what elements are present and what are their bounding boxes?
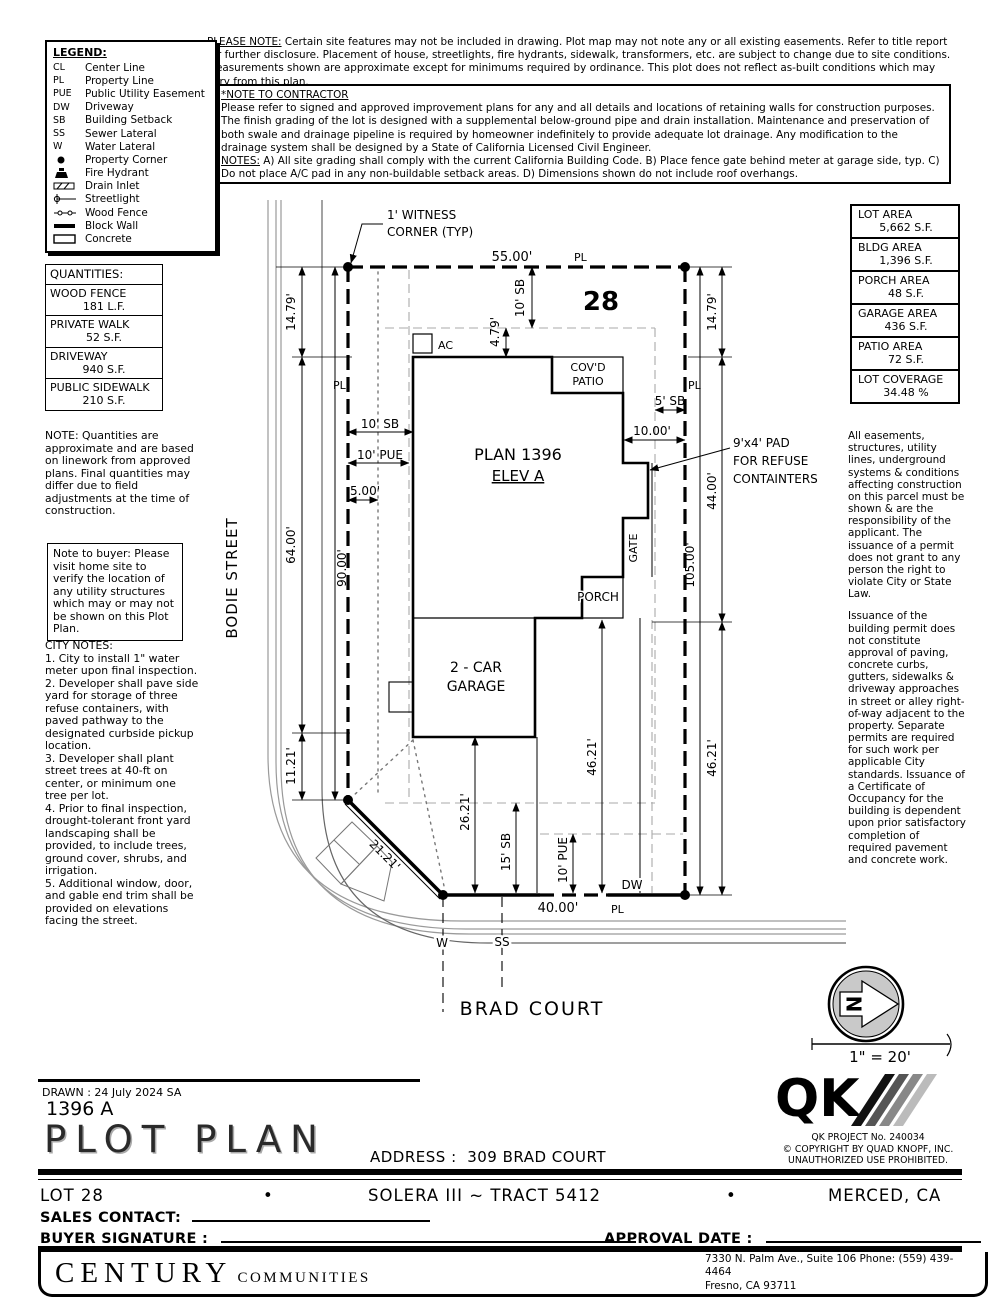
areas-row: LOT COVERAGE34.48 % (850, 369, 960, 404)
area-value: 436 S.F. (858, 320, 954, 333)
witness-corner-label-2: CORNER (TYP) (387, 225, 473, 239)
area-name: PORCH AREA (858, 274, 954, 287)
dim-5sb: 5' SB (655, 394, 686, 408)
sewer-lateral-label: SS (494, 935, 509, 949)
address-label: ADDRESS : (370, 1148, 457, 1166)
quantities-table: QUANTITIES: WOOD FENCE181 L.F. PRIVATE W… (45, 266, 163, 411)
area-name: BLDG AREA (858, 241, 954, 254)
pl-symbol-right: PL (688, 379, 702, 392)
dimension-lines (302, 224, 730, 895)
tract-label: SOLERA III ~ TRACT 5412 (368, 1186, 601, 1205)
dim-15sb: 15' SB (499, 833, 513, 871)
quantity-name: WOOD FENCE (50, 287, 158, 300)
city-note-4: 4. Prior to final inspection, drought-to… (45, 803, 200, 878)
sewer-symbol: SS (53, 128, 85, 139)
streetlight-icon (53, 193, 85, 205)
city-note-1: 1. City to install 1" water meter upon f… (45, 653, 200, 678)
qk-logo-text: QK (775, 1069, 861, 1128)
brand-secondary: COMMUNITIES (237, 1270, 370, 1286)
approval-date-blank (766, 1229, 981, 1243)
city-note-3: 3. Developer shall plant street trees at… (45, 753, 200, 803)
dim-top-55: 55.00' (492, 250, 533, 265)
divider-line-top (38, 1079, 420, 1082)
refuse-pad-label-2: FOR REFUSE (733, 454, 808, 468)
dim-right-4621: 46.21' (705, 739, 719, 777)
dim-2121: 21.21' (367, 837, 404, 874)
quantities-row: WOOD FENCE181 L.F. (45, 284, 163, 317)
sales-contact-blank (192, 1208, 430, 1222)
quantity-name: DRIVEWAY (50, 350, 158, 363)
covd-patio-label-1: COV'D (570, 361, 605, 374)
legend-label: Center Line (85, 62, 145, 74)
plot-plan-sheet: { "notes": { "please_note_label": "PLEAS… (0, 0, 1000, 1302)
dim-left-1479: 14.79' (284, 293, 298, 331)
plan-name-label: PLAN 1396 (474, 445, 562, 464)
dim-right-105: 105.00' (683, 542, 697, 587)
areas-row: LOT AREA5,662 S.F. (850, 204, 960, 239)
footer-box: CENTURY COMMUNITIES 7330 N. Palm Ave., S… (38, 1252, 988, 1297)
buyer-signature-row: BUYER SIGNATURE : (40, 1228, 636, 1247)
property-corner-icon (53, 154, 85, 166)
areas-table: LOT AREA5,662 S.F. BLDG AREA1,396 S.F. P… (850, 206, 960, 404)
city-label: MERCED, CA (828, 1186, 941, 1205)
legend-item-streetlight: Streetlight (53, 193, 209, 206)
legend-item-wood-fence: Wood Fence (53, 206, 209, 219)
city-note-2: 2. Developer shall pave side yard for st… (45, 678, 200, 753)
wood-fence-lines (352, 272, 444, 886)
quantity-name: PUBLIC SIDEWALK (50, 381, 158, 394)
contractor-note-p2: The finish grading of the lot is designe… (221, 115, 943, 155)
contractor-notes-text: A) All site grading shall comply with th… (221, 155, 940, 180)
contractor-note-p1: Please refer to signed and approved impr… (221, 102, 943, 115)
pl-symbol-left: PL (333, 379, 347, 392)
quantities-row: PUBLIC SIDEWALK210 S.F. (45, 378, 163, 411)
dim-479: 4.79' (488, 317, 502, 347)
area-name: LOT COVERAGE (858, 373, 954, 386)
dim-inner-4621: 46.21' (585, 738, 599, 776)
quantity-value: 181 L.F. (50, 300, 158, 313)
legend-label: Property Line (85, 75, 154, 87)
easement-note: All easements, structures, utility lines… (848, 430, 966, 600)
dim-left-90: 90.00' (335, 549, 349, 587)
contractor-note-p3: NOTES: A) All site grading shall comply … (221, 155, 943, 181)
house-outline (389, 334, 652, 893)
setback-easement-lines (385, 270, 683, 893)
driveway-label: DW (621, 878, 642, 892)
legend-label: Drain Inlet (85, 180, 139, 192)
legend-item-fire-hydrant: Fire Hydrant (53, 167, 209, 180)
area-value: 1,396 S.F. (858, 254, 954, 267)
quantity-value: 52 S.F. (50, 331, 158, 344)
area-value: 5,662 S.F. (858, 221, 954, 234)
street-lines (268, 200, 846, 943)
areas-row: GARAGE AREA436 S.F. (850, 303, 960, 338)
dim-500: 5.00' (350, 484, 380, 498)
sheet-title: PLOT PLAN (44, 1118, 327, 1161)
area-value: 72 S.F. (858, 353, 954, 366)
driveway-symbol: DW (53, 102, 85, 113)
address-value: 309 BRAD COURT (467, 1148, 606, 1166)
buyer-note-box: Note to buyer: Please visit home site to… (47, 543, 183, 641)
wood-fence-icon (53, 207, 85, 219)
water-symbol: W (53, 141, 85, 152)
quantities-title: QUANTITIES: (45, 264, 163, 285)
fire-hydrant-icon (53, 167, 85, 179)
city-notes-title: CITY NOTES: (45, 640, 200, 653)
dim-10sb-left: 10' SB (361, 417, 399, 431)
contractor-note-label: *NOTE TO CONTRACTOR (221, 89, 943, 102)
legend-label: Building Setback (85, 114, 172, 126)
pue-symbol: PUE (53, 88, 85, 99)
areas-row: PATIO AREA72 S.F. (850, 336, 960, 371)
copyright-line-1: © COPYRIGHT BY QUAD KNOPF, INC. (773, 1144, 963, 1156)
city-notes: CITY NOTES: 1. City to install 1" water … (45, 640, 200, 928)
qk-logo-graphic: QK (773, 1068, 963, 1128)
ac-pad-label: AC (438, 339, 453, 352)
copyright-line-2: UNAUTHORIZED USE PROHIBITED. (773, 1155, 963, 1167)
dim-10pue-bottom: 10' PUE (556, 837, 570, 883)
water-lateral-label: W (436, 936, 448, 950)
brand-primary: CENTURY (55, 1257, 232, 1289)
right-notes: All easements, structures, utility lines… (848, 430, 966, 866)
property-lines (345, 267, 685, 899)
area-name: GARAGE AREA (858, 307, 954, 320)
legend-item-concrete: Concrete (53, 232, 209, 245)
legend-label: Concrete (85, 233, 132, 245)
drawing-labels: 1' WITNESS CORNER (TYP) 55.00' PL 28 PL … (223, 208, 818, 1020)
approval-date-label: APPROVAL DATE : (604, 1231, 753, 1247)
lot-label: LOT 28 (40, 1186, 104, 1205)
city-note-5: 5. Additional window, door, and gable en… (45, 878, 200, 928)
legend-item-property-line: PLProperty Line (53, 74, 209, 87)
buyer-signature-blank (221, 1229, 636, 1243)
legend-item-pue: PUEPublic Utility Easement (53, 87, 209, 100)
setback-symbol: SB (53, 115, 85, 126)
legend-label: Wood Fence (85, 207, 148, 219)
north-label: N (842, 996, 866, 1013)
dim-2621: 26.21' (458, 793, 472, 831)
pl-symbol-top: PL (574, 251, 588, 264)
north-arrow: N (829, 967, 903, 1041)
dim-10sb-top: 10' SB (513, 279, 527, 317)
qk-logo: QK QK PROJECT No. 240034 © COPYRIGHT BY … (773, 1068, 963, 1167)
garage-label-2: GARAGE (447, 679, 506, 695)
sales-contact-row: SALES CONTACT: (40, 1207, 430, 1226)
porch-label: PORCH (577, 590, 619, 604)
area-value: 48 S.F. (858, 287, 954, 300)
contractor-notes-label: NOTES: (221, 155, 260, 167)
legend-label: Public Utility Easement (85, 88, 205, 100)
bodie-street-label: BODIE STREET (223, 517, 241, 638)
drain-inlet-icon (53, 180, 85, 192)
legend-label: Fire Hydrant (85, 167, 149, 179)
please-note-label: PLEASE NOTE: (207, 36, 282, 48)
permit-note: Issuance of the building permit does not… (848, 610, 966, 866)
property-line-symbol: PL (53, 75, 85, 86)
legend-title: LEGEND: (53, 46, 209, 59)
centerline-symbol: CL (53, 62, 85, 73)
bullet-2: • (726, 1186, 737, 1205)
legend-label: Streetlight (85, 193, 140, 205)
legend-item-driveway: DWDriveway (53, 101, 209, 114)
dim-10pue-left: 10' PUE (357, 448, 403, 462)
legend-label: Block Wall (85, 220, 138, 232)
dim-left-1121: 11.21' (284, 747, 298, 785)
dim-4000: 40.00' (538, 901, 579, 916)
footer-address-line-2: Fresno, CA 93711 (705, 1280, 973, 1294)
legend-item-sewer: SSSewer Lateral (53, 127, 209, 140)
dim-right-44: 44.00' (705, 472, 719, 510)
qk-project-number: QK PROJECT No. 240034 (773, 1132, 963, 1144)
contractor-note-box: *NOTE TO CONTRACTOR Please refer to sign… (213, 84, 951, 184)
dim-right-1479: 14.79' (705, 293, 719, 331)
legend-label: Water Lateral (85, 141, 155, 153)
quantity-value: 210 S.F. (50, 394, 158, 407)
area-name: PATIO AREA (858, 340, 954, 353)
legend-item-block-wall: Block Wall (53, 219, 209, 232)
divider-line-1 (38, 1179, 962, 1180)
please-note: PLEASE NOTE: Certain site features may n… (207, 36, 952, 89)
divider-bar-1 (38, 1169, 962, 1175)
areas-row: BLDG AREA1,396 S.F. (850, 237, 960, 272)
block-wall-icon (53, 220, 85, 232)
brad-court-label: BRAD COURT (460, 998, 605, 1020)
buyer-signature-label: BUYER SIGNATURE : (40, 1231, 208, 1247)
quantity-name: PRIVATE WALK (50, 318, 158, 331)
legend-item-property-corner: Property Corner (53, 153, 209, 166)
refuse-pad-label-1: 9'x4' PAD (733, 436, 790, 450)
legend-label: Property Corner (85, 154, 167, 166)
legend-item-water: WWater Lateral (53, 140, 209, 153)
quantities-row: PRIVATE WALK52 S.F. (45, 315, 163, 348)
legend-label: Driveway (85, 101, 134, 113)
areas-row: PORCH AREA48 S.F. (850, 270, 960, 305)
please-note-text: Certain site features may not be include… (207, 36, 950, 88)
footer-address-line-1: 7330 N. Palm Ave., Suite 106 Phone: (559… (705, 1253, 973, 1280)
elev-label: ELEV A (492, 467, 545, 485)
address-line: ADDRESS : 309 BRAD COURT (370, 1148, 606, 1166)
legend-item-drain-inlet: Drain Inlet (53, 180, 209, 193)
sales-contact-label: SALES CONTACT: (40, 1210, 181, 1226)
quantity-value: 940 S.F. (50, 363, 158, 376)
dim-left-64: 64.00' (284, 526, 298, 564)
quantities-note: NOTE: Quantities are approximate and are… (45, 430, 197, 518)
legend-item-setback: SBBuilding Setback (53, 114, 209, 127)
legend-item-centerline: CLCenter Line (53, 61, 209, 74)
legend-box: LEGEND: CLCenter Line PLProperty Line PU… (45, 40, 217, 253)
scale-label: 1" = 20' (849, 1048, 911, 1066)
area-value: 34.48 % (858, 386, 954, 399)
gate-label: GATE (627, 534, 640, 563)
dim-1000: 10.00' (633, 424, 671, 438)
witness-corner-label-1: 1' WITNESS (387, 208, 456, 222)
covd-patio-label-2: PATIO (572, 375, 604, 388)
legend-label: Sewer Lateral (85, 128, 157, 140)
refuse-pad-label-3: CONTAINTERS (733, 472, 818, 486)
footer-address: 7330 N. Palm Ave., Suite 106 Phone: (559… (705, 1253, 973, 1294)
bullet-1: • (263, 1186, 274, 1205)
garage-label-1: 2 - CAR (450, 660, 502, 676)
utility-laterals (443, 897, 502, 1012)
concrete-icon (53, 233, 85, 245)
quantities-row: DRIVEWAY940 S.F. (45, 347, 163, 380)
brand: CENTURY COMMUNITIES (55, 1257, 371, 1290)
pl-symbol-bottom: PL (611, 903, 625, 916)
lot-number: 28 (583, 287, 619, 317)
approval-date-row: APPROVAL DATE : (604, 1228, 981, 1247)
area-name: LOT AREA (858, 208, 954, 221)
plan-number: 1396 A (46, 1098, 113, 1120)
